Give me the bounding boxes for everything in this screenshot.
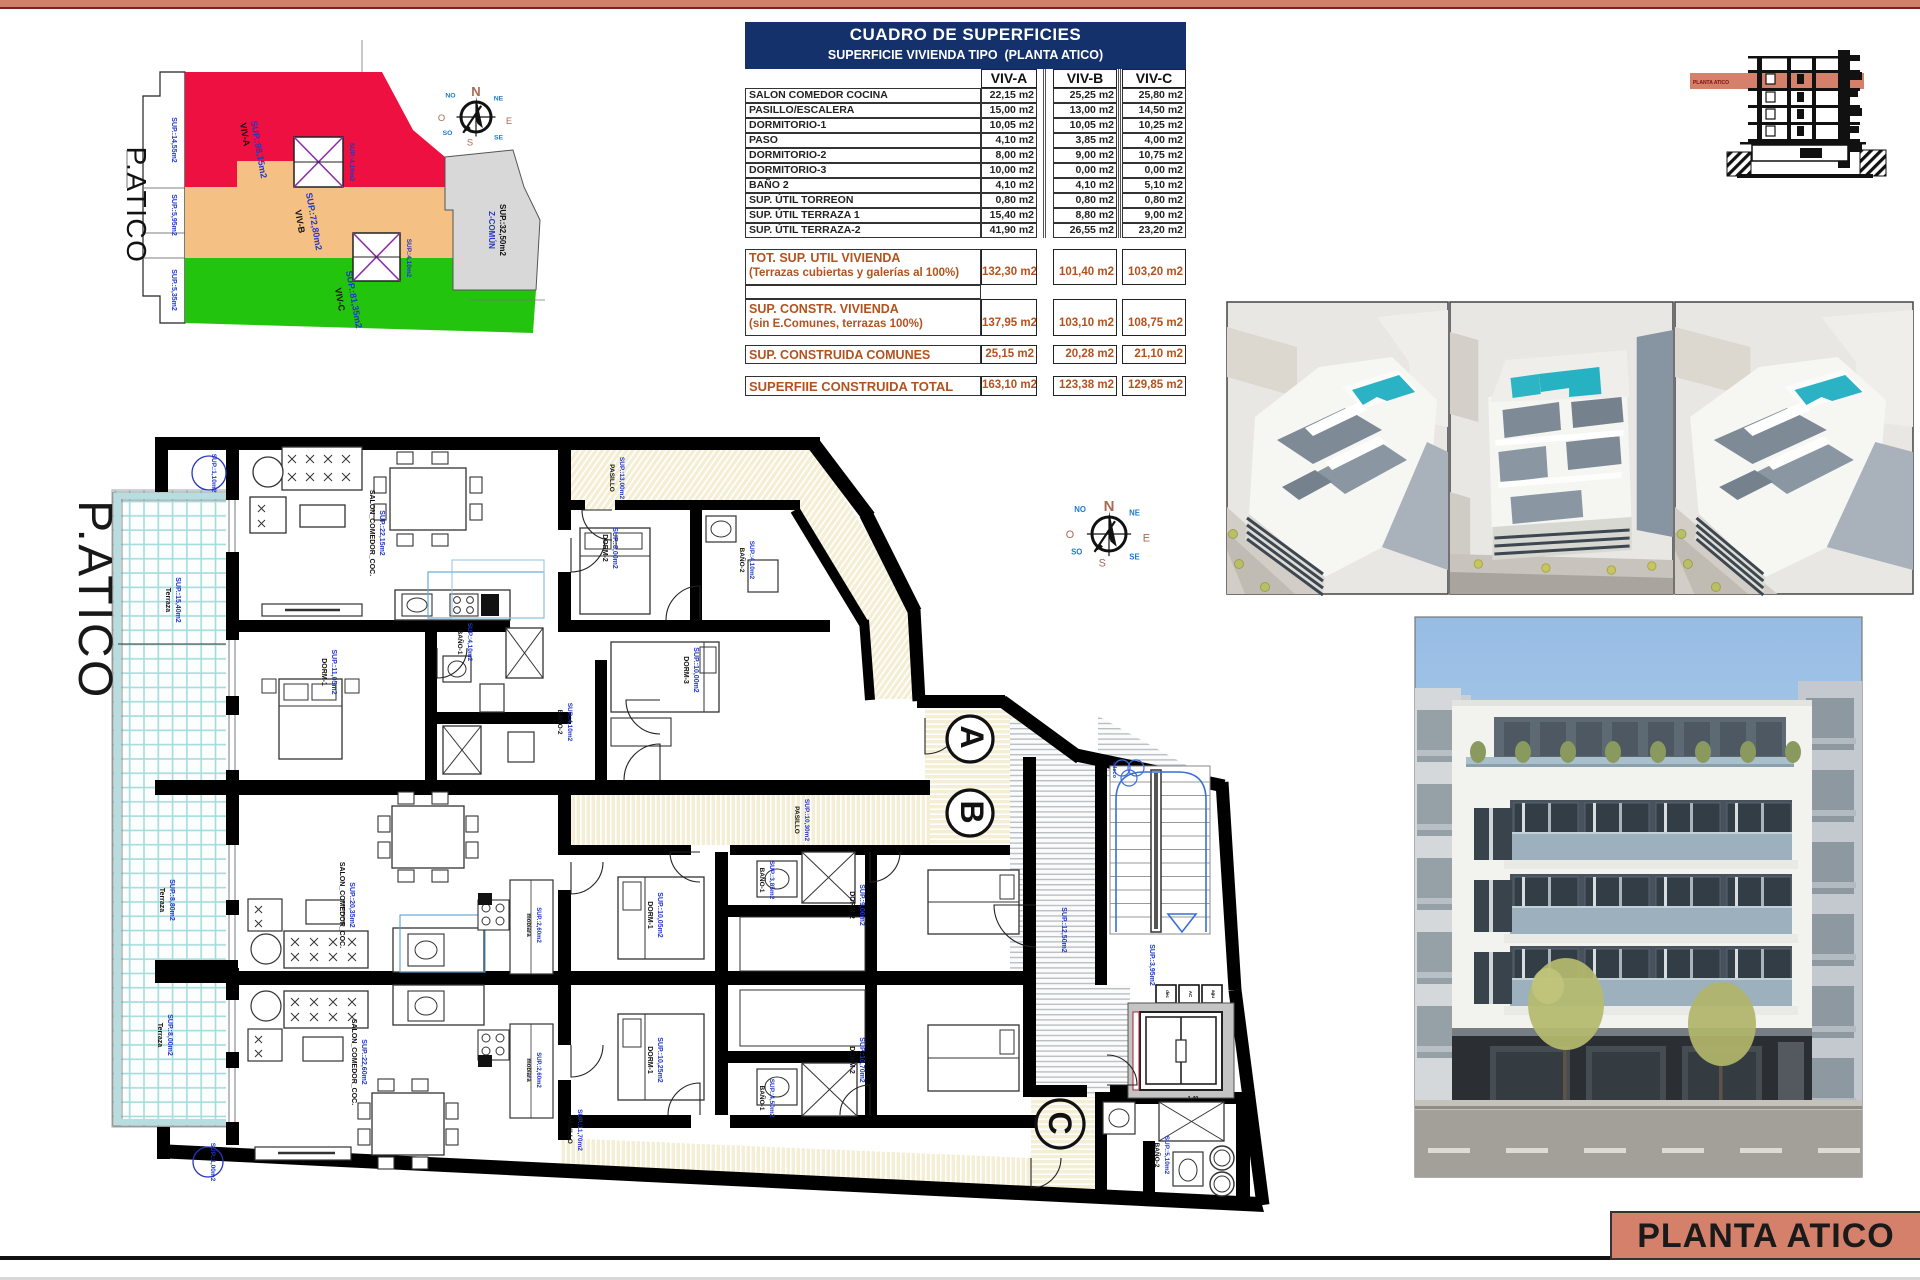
svg-text:SUP.:12,50m2: SUP.:12,50m2 (1060, 907, 1067, 953)
svg-text:moblara: moblara (525, 1058, 531, 1082)
svg-text:BAÑO-1: BAÑO-1 (456, 630, 465, 655)
svg-text:SUP.:11,70m2: SUP.:11,70m2 (576, 1109, 583, 1151)
svg-text:DORM-1: DORM-1 (646, 901, 653, 929)
svg-text:SUP.:22,15m2: SUP.:22,15m2 (378, 510, 385, 556)
svg-text:SUP.:13,00m2: SUP.:13,00m2 (618, 457, 625, 500)
svg-text:N: N (471, 84, 480, 99)
svg-text:SO: SO (443, 130, 453, 137)
svg-text:SE: SE (1129, 553, 1139, 562)
svg-text:C: C (1042, 1111, 1078, 1134)
svg-text:DORM-3: DORM-3 (682, 656, 689, 684)
svg-text:BAÑO-2: BAÑO-2 (556, 710, 565, 735)
svg-text:P.ATICO: P.ATICO (121, 147, 152, 264)
svg-text:SUP.:8,00m2: SUP.:8,00m2 (611, 527, 618, 569)
svg-text:SUP.:4,10m2: SUP.:4,10m2 (348, 143, 355, 182)
svg-text:SUP.:4,10m2: SUP.:4,10m2 (566, 703, 573, 742)
svg-text:agu: agu (1211, 990, 1216, 998)
svg-text:O: O (438, 112, 445, 123)
svg-text:AC: AC (1188, 991, 1193, 998)
svg-text:SE: SE (494, 135, 504, 142)
svg-text:SUP.:32,50m2: SUP.:32,50m2 (498, 204, 507, 256)
svg-text:SUP.:3,95m2: SUP.:3,95m2 (1148, 944, 1155, 986)
svg-text:SUP.:4,10m2: SUP.:4,10m2 (748, 541, 755, 580)
svg-text:E: E (1143, 533, 1150, 545)
svg-text:DORM-1: DORM-1 (320, 658, 327, 686)
svg-text:SUP.:2,60m2: SUP.:2,60m2 (535, 1052, 541, 1088)
svg-text:SUP.:20,35m2: SUP.:20,35m2 (348, 882, 355, 928)
svg-text:DORM-2: DORM-2 (601, 534, 608, 562)
svg-text:NE: NE (1129, 508, 1140, 517)
svg-text:dec: dec (1165, 990, 1170, 998)
svg-text:SUP.:10,30m2: SUP.:10,30m2 (803, 799, 810, 842)
svg-text:BAÑO-2: BAÑO-2 (738, 548, 747, 573)
svg-text:moblara: moblara (525, 913, 531, 937)
svg-text:SUP.:11,05m2: SUP.:11,05m2 (330, 649, 337, 694)
svg-text:SUP.:5,95m2: SUP.:5,95m2 (170, 194, 177, 236)
svg-text:SO: SO (1071, 547, 1082, 556)
svg-text:Terraza: Terraza (156, 1023, 163, 1047)
svg-text:BAÑO-1: BAÑO-1 (758, 868, 767, 893)
svg-text:SUP.:8,00m2: SUP.:8,00m2 (166, 1014, 173, 1056)
svg-text:NO: NO (445, 93, 455, 100)
svg-text:B: B (954, 800, 990, 823)
svg-text:SUP.:1,00m2: SUP.:1,00m2 (209, 1143, 216, 1182)
svg-text:SUP.:22,60m2: SUP.:22,60m2 (360, 1039, 367, 1085)
svg-text:SUP.:10,25m2: SUP.:10,25m2 (656, 1037, 663, 1083)
svg-text:SUP.:9,00m2: SUP.:9,00m2 (858, 884, 865, 926)
svg-text:DORM-2: DORM-2 (848, 891, 855, 919)
svg-text:SUP.:3,85m2: SUP.:3,85m2 (768, 861, 775, 900)
svg-text:SUP.:10,70m2: SUP.:10,70m2 (858, 1037, 865, 1083)
svg-text:P.ATICO: P.ATICO (68, 500, 121, 700)
svg-text:SUP.:4,10m2: SUP.:4,10m2 (466, 623, 473, 662)
svg-text:Terraza: Terraza (158, 888, 165, 912)
svg-text:NE: NE (494, 96, 504, 103)
svg-text:O: O (1066, 529, 1074, 541)
svg-text:teleco: teleco (1111, 762, 1117, 779)
svg-text:DORM-1: DORM-1 (646, 1046, 653, 1074)
svg-text:SUP.:2,60m2: SUP.:2,60m2 (535, 907, 541, 943)
svg-text:A: A (954, 725, 990, 748)
svg-text:S: S (467, 137, 473, 148)
svg-text:SUP.:1,10m2: SUP.:1,10m2 (210, 454, 217, 493)
svg-text:SUP.:10,00m2: SUP.:10,00m2 (692, 647, 699, 693)
svg-text:SUP.:15,40m2: SUP.:15,40m2 (174, 577, 181, 623)
svg-text:SALON_COMEDOR_COC.: SALON_COMEDOR_COC. (338, 862, 345, 948)
svg-text:S: S (1099, 557, 1106, 569)
svg-text:BAÑO-1: BAÑO-1 (758, 1086, 767, 1111)
svg-text:DORM-2: DORM-2 (848, 1046, 855, 1074)
svg-text:PASILLO: PASILLO (608, 464, 615, 492)
svg-text:Terraza: Terraza (164, 588, 171, 612)
svg-text:PASILLO: PASILLO (793, 806, 800, 834)
svg-text:SUP.:10,05m2: SUP.:10,05m2 (656, 892, 663, 938)
svg-text:PASILLO: PASILLO (566, 1116, 573, 1144)
svg-text:SUP.:5,10m2: SUP.:5,10m2 (1163, 1136, 1170, 1175)
svg-text:PLANTA ATICO: PLANTA ATICO (1693, 80, 1729, 86)
svg-text:SUP.:8,80m2: SUP.:8,80m2 (168, 879, 175, 921)
svg-text:N: N (1104, 498, 1115, 515)
svg-text:1,40: 1,40 (1188, 1096, 1199, 1102)
svg-text:SUP.:5,35m2: SUP.:5,35m2 (170, 269, 177, 311)
svg-text:NO: NO (1074, 505, 1086, 514)
svg-text:SALON_COMEDOR_COC.: SALON_COMEDOR_COC. (350, 1019, 357, 1105)
svg-text:E: E (506, 115, 512, 126)
svg-text:BAÑO-2: BAÑO-2 (1153, 1143, 1162, 1168)
svg-text:SUP.:4,10m2: SUP.:4,10m2 (405, 239, 412, 278)
svg-text:Z-COMÚN: Z-COMÚN (487, 211, 496, 249)
svg-text:SUP.:14,55m2: SUP.:14,55m2 (170, 117, 177, 163)
svg-text:SALON_COMEDOR_COC.: SALON_COMEDOR_COC. (368, 490, 375, 576)
svg-text:SUP.:4,50m2: SUP.:4,50m2 (768, 1079, 775, 1118)
